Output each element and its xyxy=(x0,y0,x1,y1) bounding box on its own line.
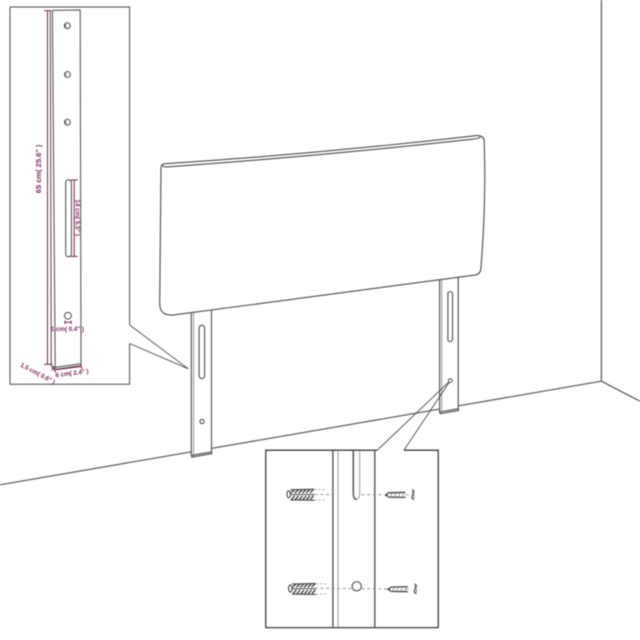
svg-text:1 cm( 0.4" ): 1 cm( 0.4" ) xyxy=(51,326,84,333)
svg-text:65 cm( 25.6" ): 65 cm( 25.6" ) xyxy=(34,144,43,193)
svg-text:14 cm( 5.5" ): 14 cm( 5.5" ) xyxy=(74,199,81,236)
